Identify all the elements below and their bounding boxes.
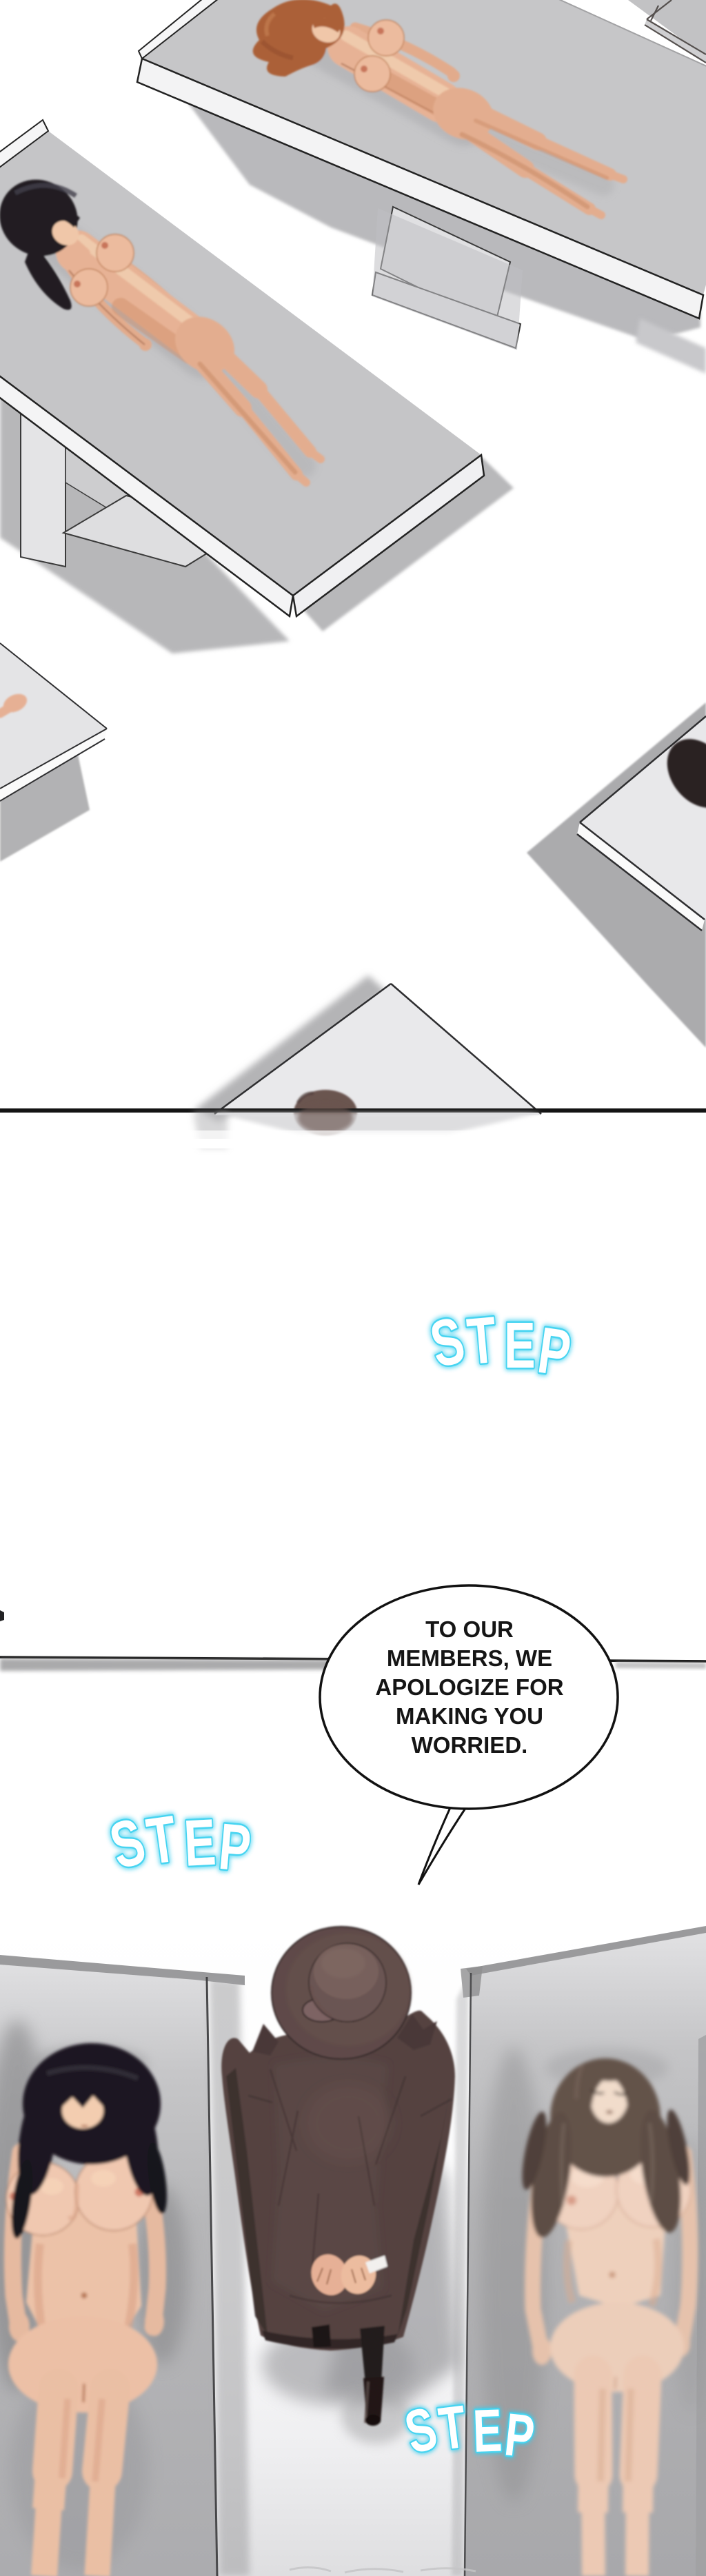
svg-text:MAKING YOU: MAKING YOU (396, 1703, 543, 1729)
svg-text:MEMBERS, WE: MEMBERS, WE (387, 1645, 552, 1671)
svg-text:APOLOGIZE FOR: APOLOGIZE FOR (375, 1674, 563, 1700)
svg-text:TO OUR: TO OUR (425, 1616, 514, 1642)
svg-text:WORRIED.: WORRIED. (412, 1732, 528, 1758)
